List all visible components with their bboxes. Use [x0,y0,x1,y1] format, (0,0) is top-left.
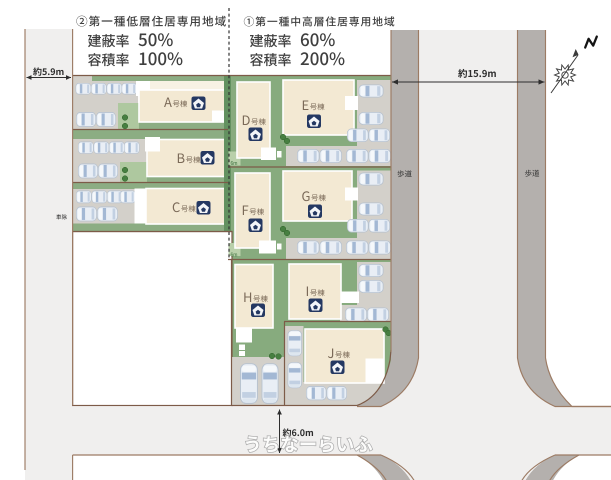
svg-text:6m: 6m [231,161,238,167]
svg-text:6m: 6m [231,253,238,259]
